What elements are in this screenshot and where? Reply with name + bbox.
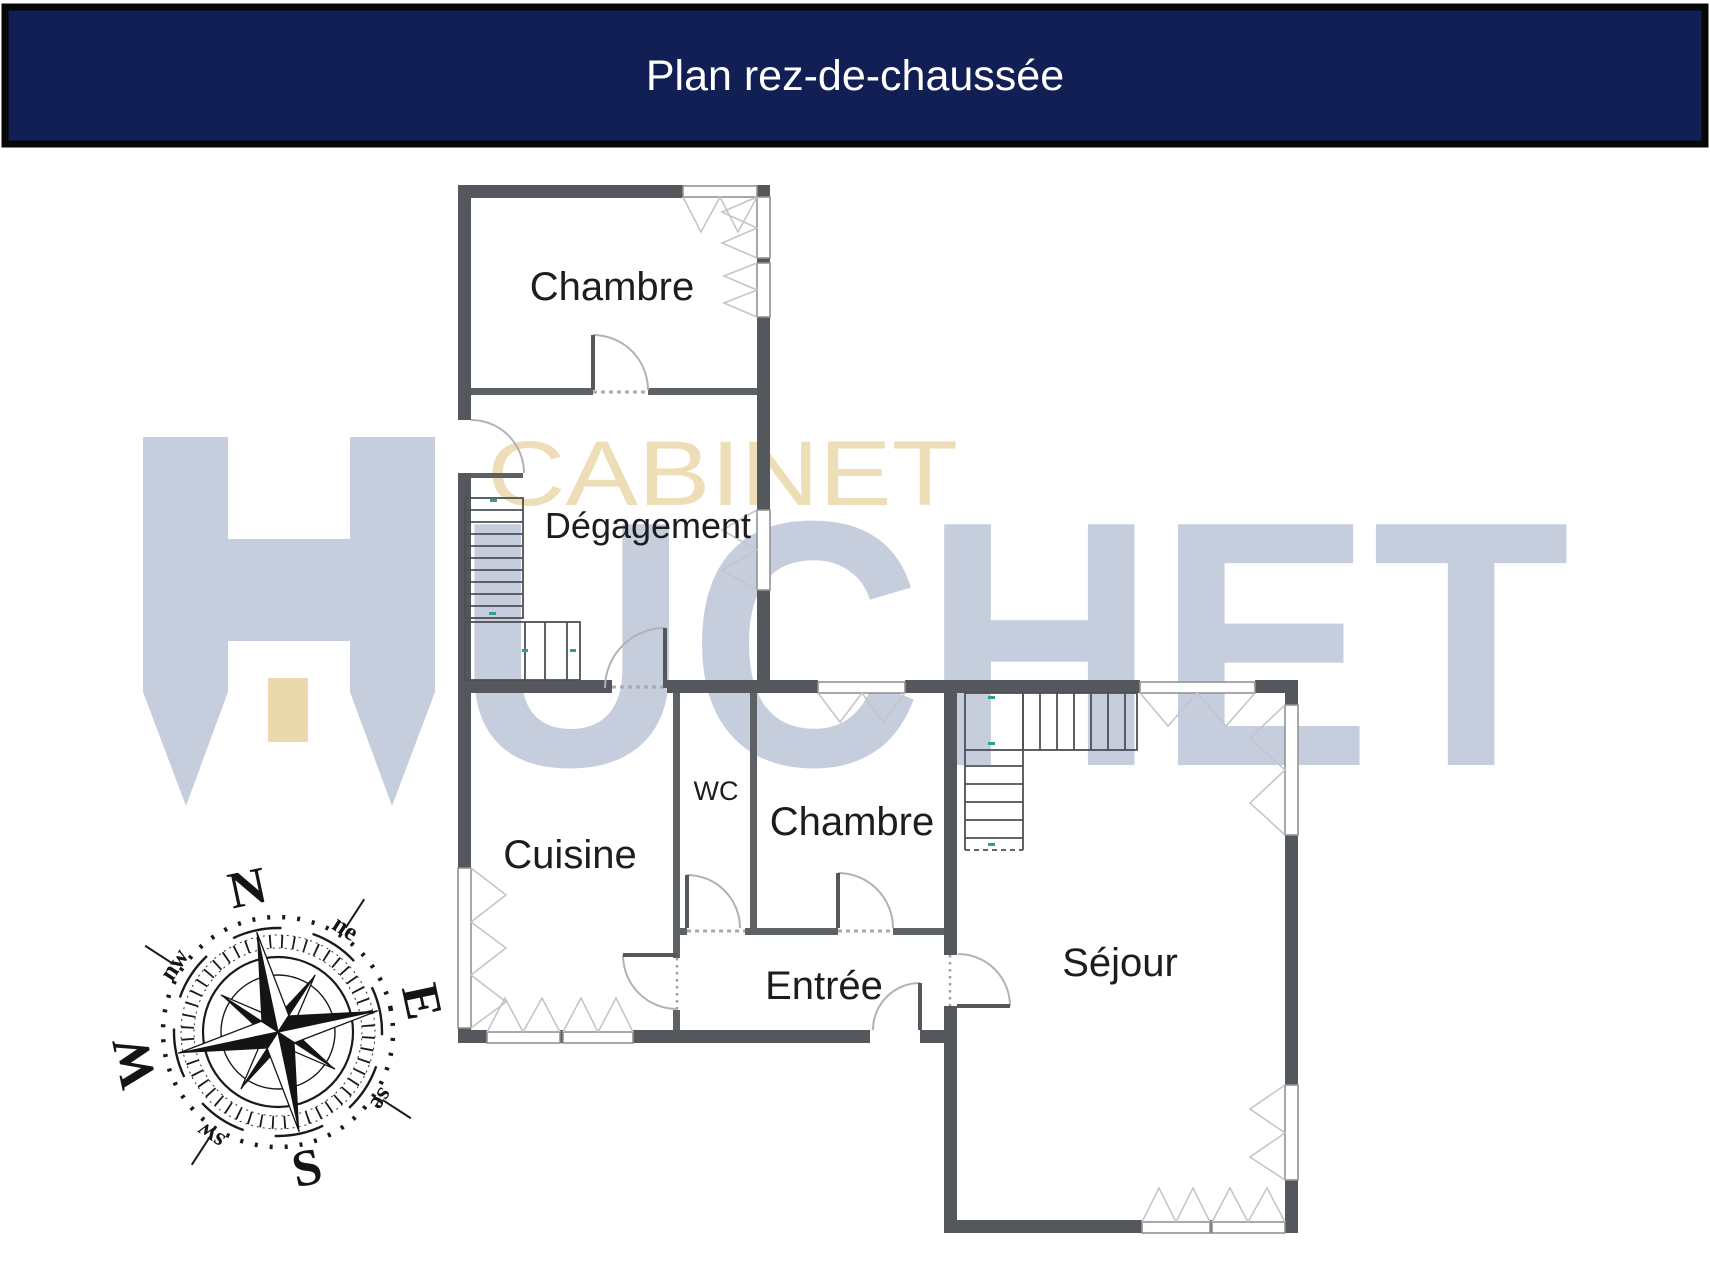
watermark-door: [268, 678, 308, 742]
floor-plan-page: CABINET UCHET: [0, 0, 1710, 1276]
watermark-h-logo: [143, 437, 435, 806]
title-bar: Plan rez-de-chaussée: [5, 7, 1705, 144]
compass-n: N: [223, 857, 272, 921]
compass-rose: N E S W ne se sw nw: [70, 824, 484, 1232]
label-cuisine: Cuisine: [503, 833, 636, 877]
plan-canvas: CABINET UCHET: [0, 0, 1710, 1276]
label-chambre-sud: Chambre: [770, 800, 935, 844]
compass-ne: ne: [327, 910, 363, 946]
compass-se: se: [364, 1083, 398, 1115]
compass-w: W: [101, 1031, 168, 1094]
label-chambre-nord: Chambre: [530, 265, 695, 309]
compass-e: E: [390, 979, 453, 1025]
compass-s: S: [287, 1138, 327, 1200]
page-title: Plan rez-de-chaussée: [646, 52, 1064, 100]
watermark: CABINET UCHET: [143, 423, 1570, 840]
label-degagement: Dégagement: [545, 505, 751, 546]
label-wc: WC: [694, 776, 739, 806]
label-entree: Entrée: [765, 964, 883, 1008]
label-sejour: Séjour: [1062, 941, 1178, 985]
